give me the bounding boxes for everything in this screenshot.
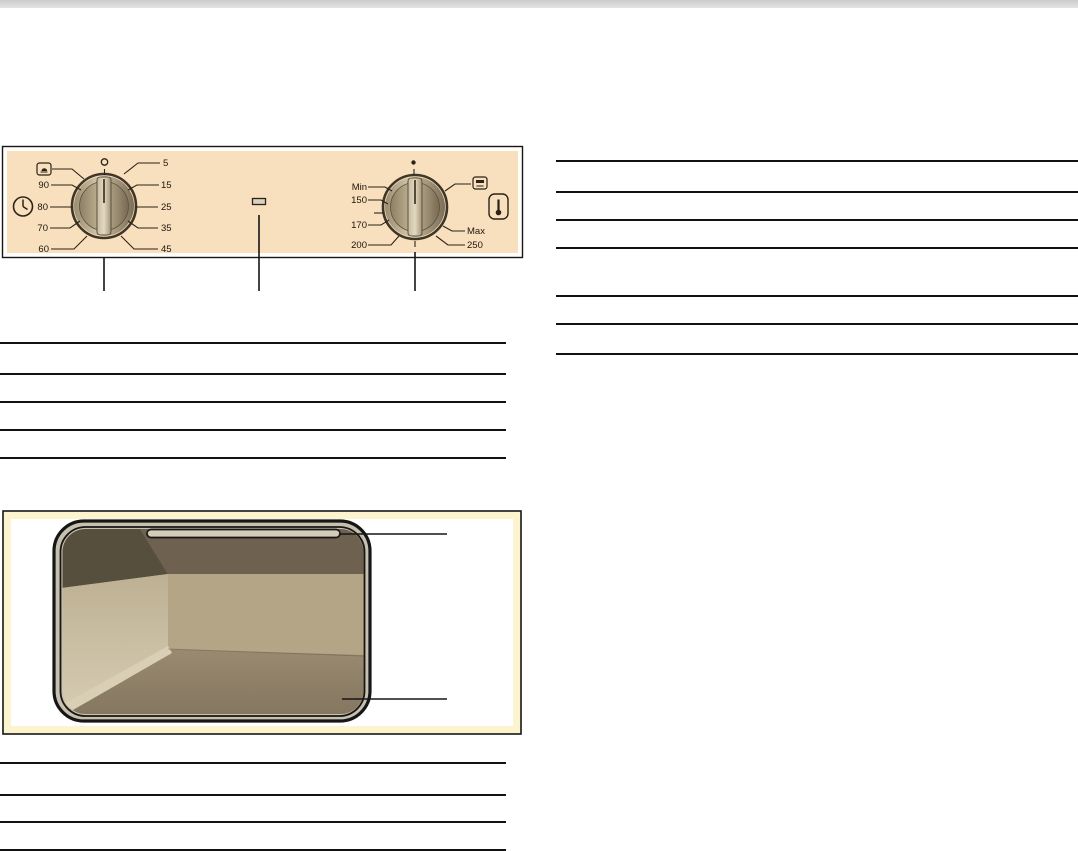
timer-label: 15: [161, 180, 172, 191]
rule-line: [0, 821, 506, 823]
timer-label: 25: [161, 202, 172, 213]
rule-line: [0, 373, 506, 375]
timer-label: 90: [38, 180, 49, 191]
oven-cavity-interior: [62, 529, 364, 715]
window-top-bar: [0, 0, 1078, 8]
timer-label: 60: [38, 244, 49, 255]
rule-line: [0, 401, 506, 403]
rule-line: [0, 762, 506, 764]
timer-label: 45: [161, 244, 172, 255]
timer-label: 80: [37, 202, 48, 213]
grill-element: [147, 530, 340, 538]
timer-knob: [72, 174, 136, 238]
rule-line: [556, 160, 1078, 162]
rule-line: [556, 323, 1078, 325]
thermostat-label: 170: [351, 220, 367, 231]
rule-line: [0, 342, 506, 344]
rule-line: [0, 457, 506, 459]
thermostat-label: 150: [351, 195, 367, 206]
thermostat-knob: [383, 175, 447, 239]
rule-line: [556, 191, 1078, 193]
oven-cavity-figure: [0, 505, 540, 740]
rule-line: [556, 353, 1078, 355]
timer-label: 5: [163, 158, 168, 169]
thermostat-label: 250: [467, 240, 483, 251]
thermostat-label: Min: [352, 182, 367, 193]
thermostat-label: 200: [351, 240, 367, 251]
timer-label: 35: [161, 223, 172, 234]
timer-label: 70: [37, 223, 48, 234]
rule-line: [0, 794, 506, 796]
control-panel-figure: 90 80 70 60 5 15 25 35 45: [0, 140, 540, 296]
rule-line: [556, 295, 1078, 297]
indicator-lamp: [253, 199, 266, 205]
rule-line: [0, 429, 506, 431]
rule-line: [556, 247, 1078, 249]
thermostat-label: Max: [467, 226, 485, 237]
rule-line: [556, 219, 1078, 221]
